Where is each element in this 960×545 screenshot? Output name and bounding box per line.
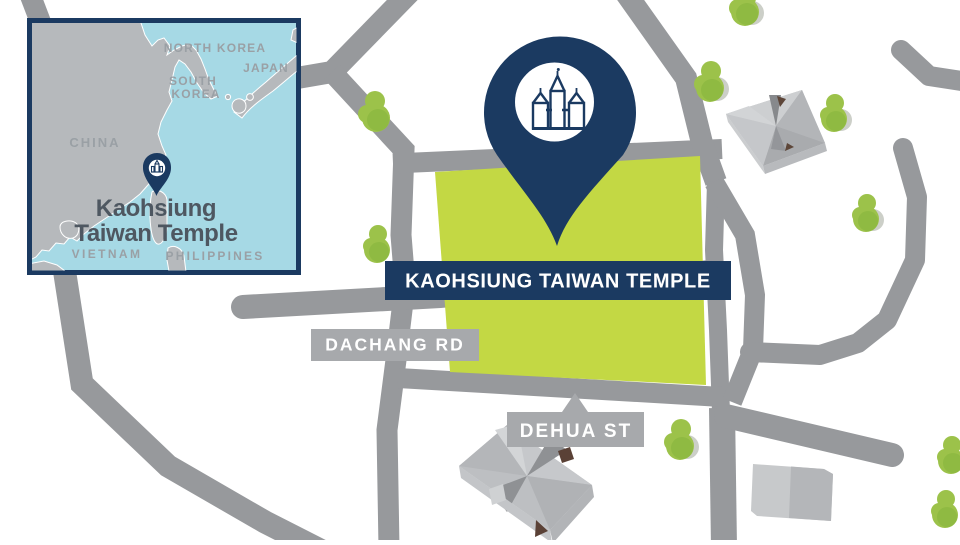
svg-text:SOUTH: SOUTH xyxy=(169,74,217,88)
svg-text:DEHUA ST: DEHUA ST xyxy=(520,421,632,442)
svg-text:PHILIPPINES: PHILIPPINES xyxy=(166,249,265,263)
svg-text:Taiwan Temple: Taiwan Temple xyxy=(74,220,237,247)
svg-text:JAPAN: JAPAN xyxy=(243,61,289,75)
svg-text:CHINA: CHINA xyxy=(69,135,120,150)
svg-text:NORTH KOREA: NORTH KOREA xyxy=(164,41,267,55)
svg-text:Kaohsiung: Kaohsiung xyxy=(96,195,216,222)
svg-text:KAOHSIUNG TAIWAN TEMPLE: KAOHSIUNG TAIWAN TEMPLE xyxy=(405,271,711,293)
svg-text:DACHANG RD: DACHANG RD xyxy=(325,335,465,355)
svg-text:KOREA: KOREA xyxy=(171,87,220,101)
svg-text:VIETNAM: VIETNAM xyxy=(72,247,143,261)
